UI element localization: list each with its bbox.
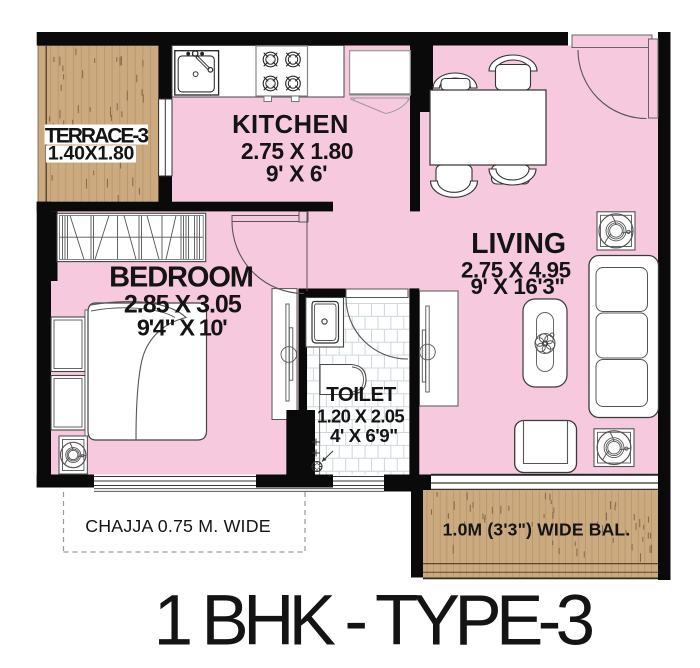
- svg-text:9' X 6': 9' X 6': [266, 160, 327, 186]
- svg-text:1 BHK - TYPE-3: 1 BHK - TYPE-3: [154, 582, 593, 661]
- svg-text:LIVING: LIVING: [471, 228, 566, 260]
- svg-text:1.0M (3'3") WIDE BAL.: 1.0M (3'3") WIDE BAL.: [443, 520, 631, 540]
- svg-text:BEDROOM: BEDROOM: [109, 262, 253, 294]
- svg-text:1.20 X 2.05: 1.20 X 2.05: [317, 405, 404, 426]
- svg-text:CHAJJA 0.75 M. WIDE: CHAJJA 0.75 M. WIDE: [85, 516, 271, 536]
- svg-text:1.40X1.80: 1.40X1.80: [48, 143, 135, 165]
- svg-text:4' X 6'9": 4' X 6'9": [330, 425, 398, 446]
- svg-text:KITCHEN: KITCHEN: [232, 111, 349, 139]
- svg-text:TOILET: TOILET: [326, 383, 396, 406]
- svg-text:9'4" X 10': 9'4" X 10': [137, 315, 227, 341]
- svg-text:9' X 16'3": 9' X 16'3": [470, 274, 564, 299]
